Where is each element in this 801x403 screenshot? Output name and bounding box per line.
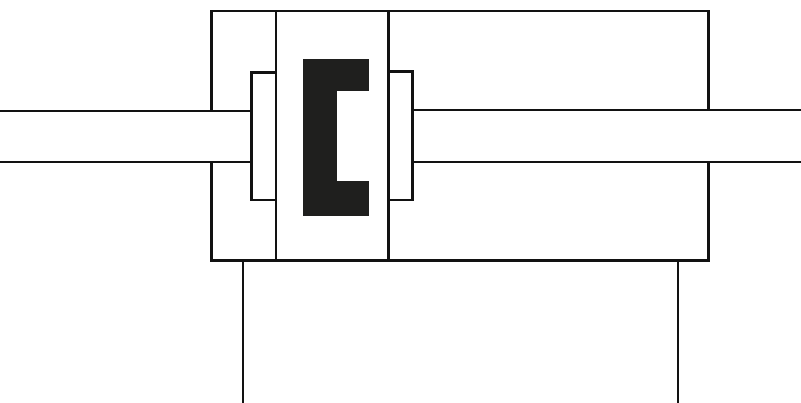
right-piston-rod-top-line xyxy=(411,109,801,111)
left-mounting-line xyxy=(242,262,244,403)
piston-cup-seal-vertical-bar xyxy=(303,59,337,216)
cylinder-body-right-wall-upper xyxy=(707,10,710,112)
piston-right-face-line xyxy=(387,10,390,263)
cylinder-body-left-wall-upper xyxy=(210,10,213,112)
piston-cup-seal-top-arm xyxy=(337,59,369,91)
right-mounting-line xyxy=(677,262,679,403)
cylinder-body-right-wall-lower xyxy=(707,161,710,262)
left-bushing-bottom-edge xyxy=(250,199,277,202)
right-piston-rod-bottom-line xyxy=(411,161,801,163)
right-bushing-right-edge xyxy=(411,70,414,201)
pneumatic-cylinder-diagram xyxy=(0,0,801,403)
cylinder-body-bottom-wall xyxy=(210,259,710,262)
left-piston-rod-top-line xyxy=(0,110,253,112)
right-bushing-top-edge xyxy=(387,70,413,73)
cylinder-body-left-wall-lower xyxy=(210,161,213,262)
piston-cup-seal-bottom-arm xyxy=(337,181,369,217)
cylinder-body-top-wall xyxy=(210,10,710,13)
piston-left-face-line xyxy=(275,10,278,263)
left-piston-rod-bottom-line xyxy=(0,161,253,163)
left-bushing-left-edge xyxy=(250,71,253,201)
left-bushing-top-edge xyxy=(250,71,277,74)
right-bushing-bottom-edge xyxy=(387,199,413,202)
